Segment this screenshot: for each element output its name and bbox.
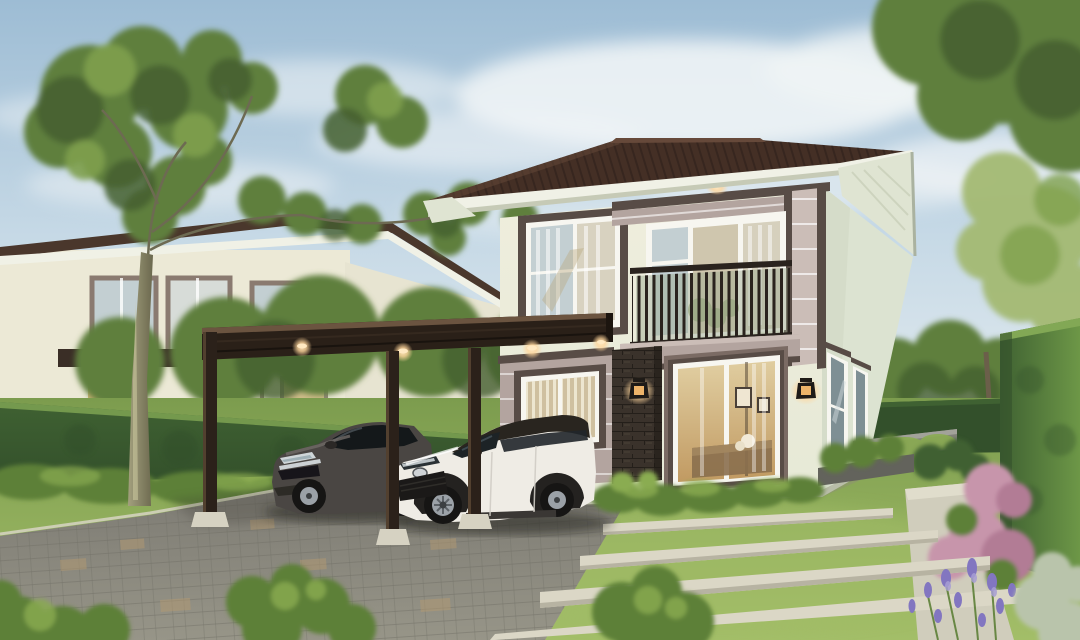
post-footing-left — [191, 512, 229, 527]
sliding-glass-door — [664, 346, 788, 494]
post-footing-right — [458, 514, 492, 529]
sedan-mirror — [325, 441, 337, 449]
scene-canvas — [0, 0, 1080, 640]
post-footing-mid — [376, 529, 410, 545]
rendered-photo-house-exterior — [0, 0, 1080, 640]
brick-accent-column — [612, 346, 662, 484]
